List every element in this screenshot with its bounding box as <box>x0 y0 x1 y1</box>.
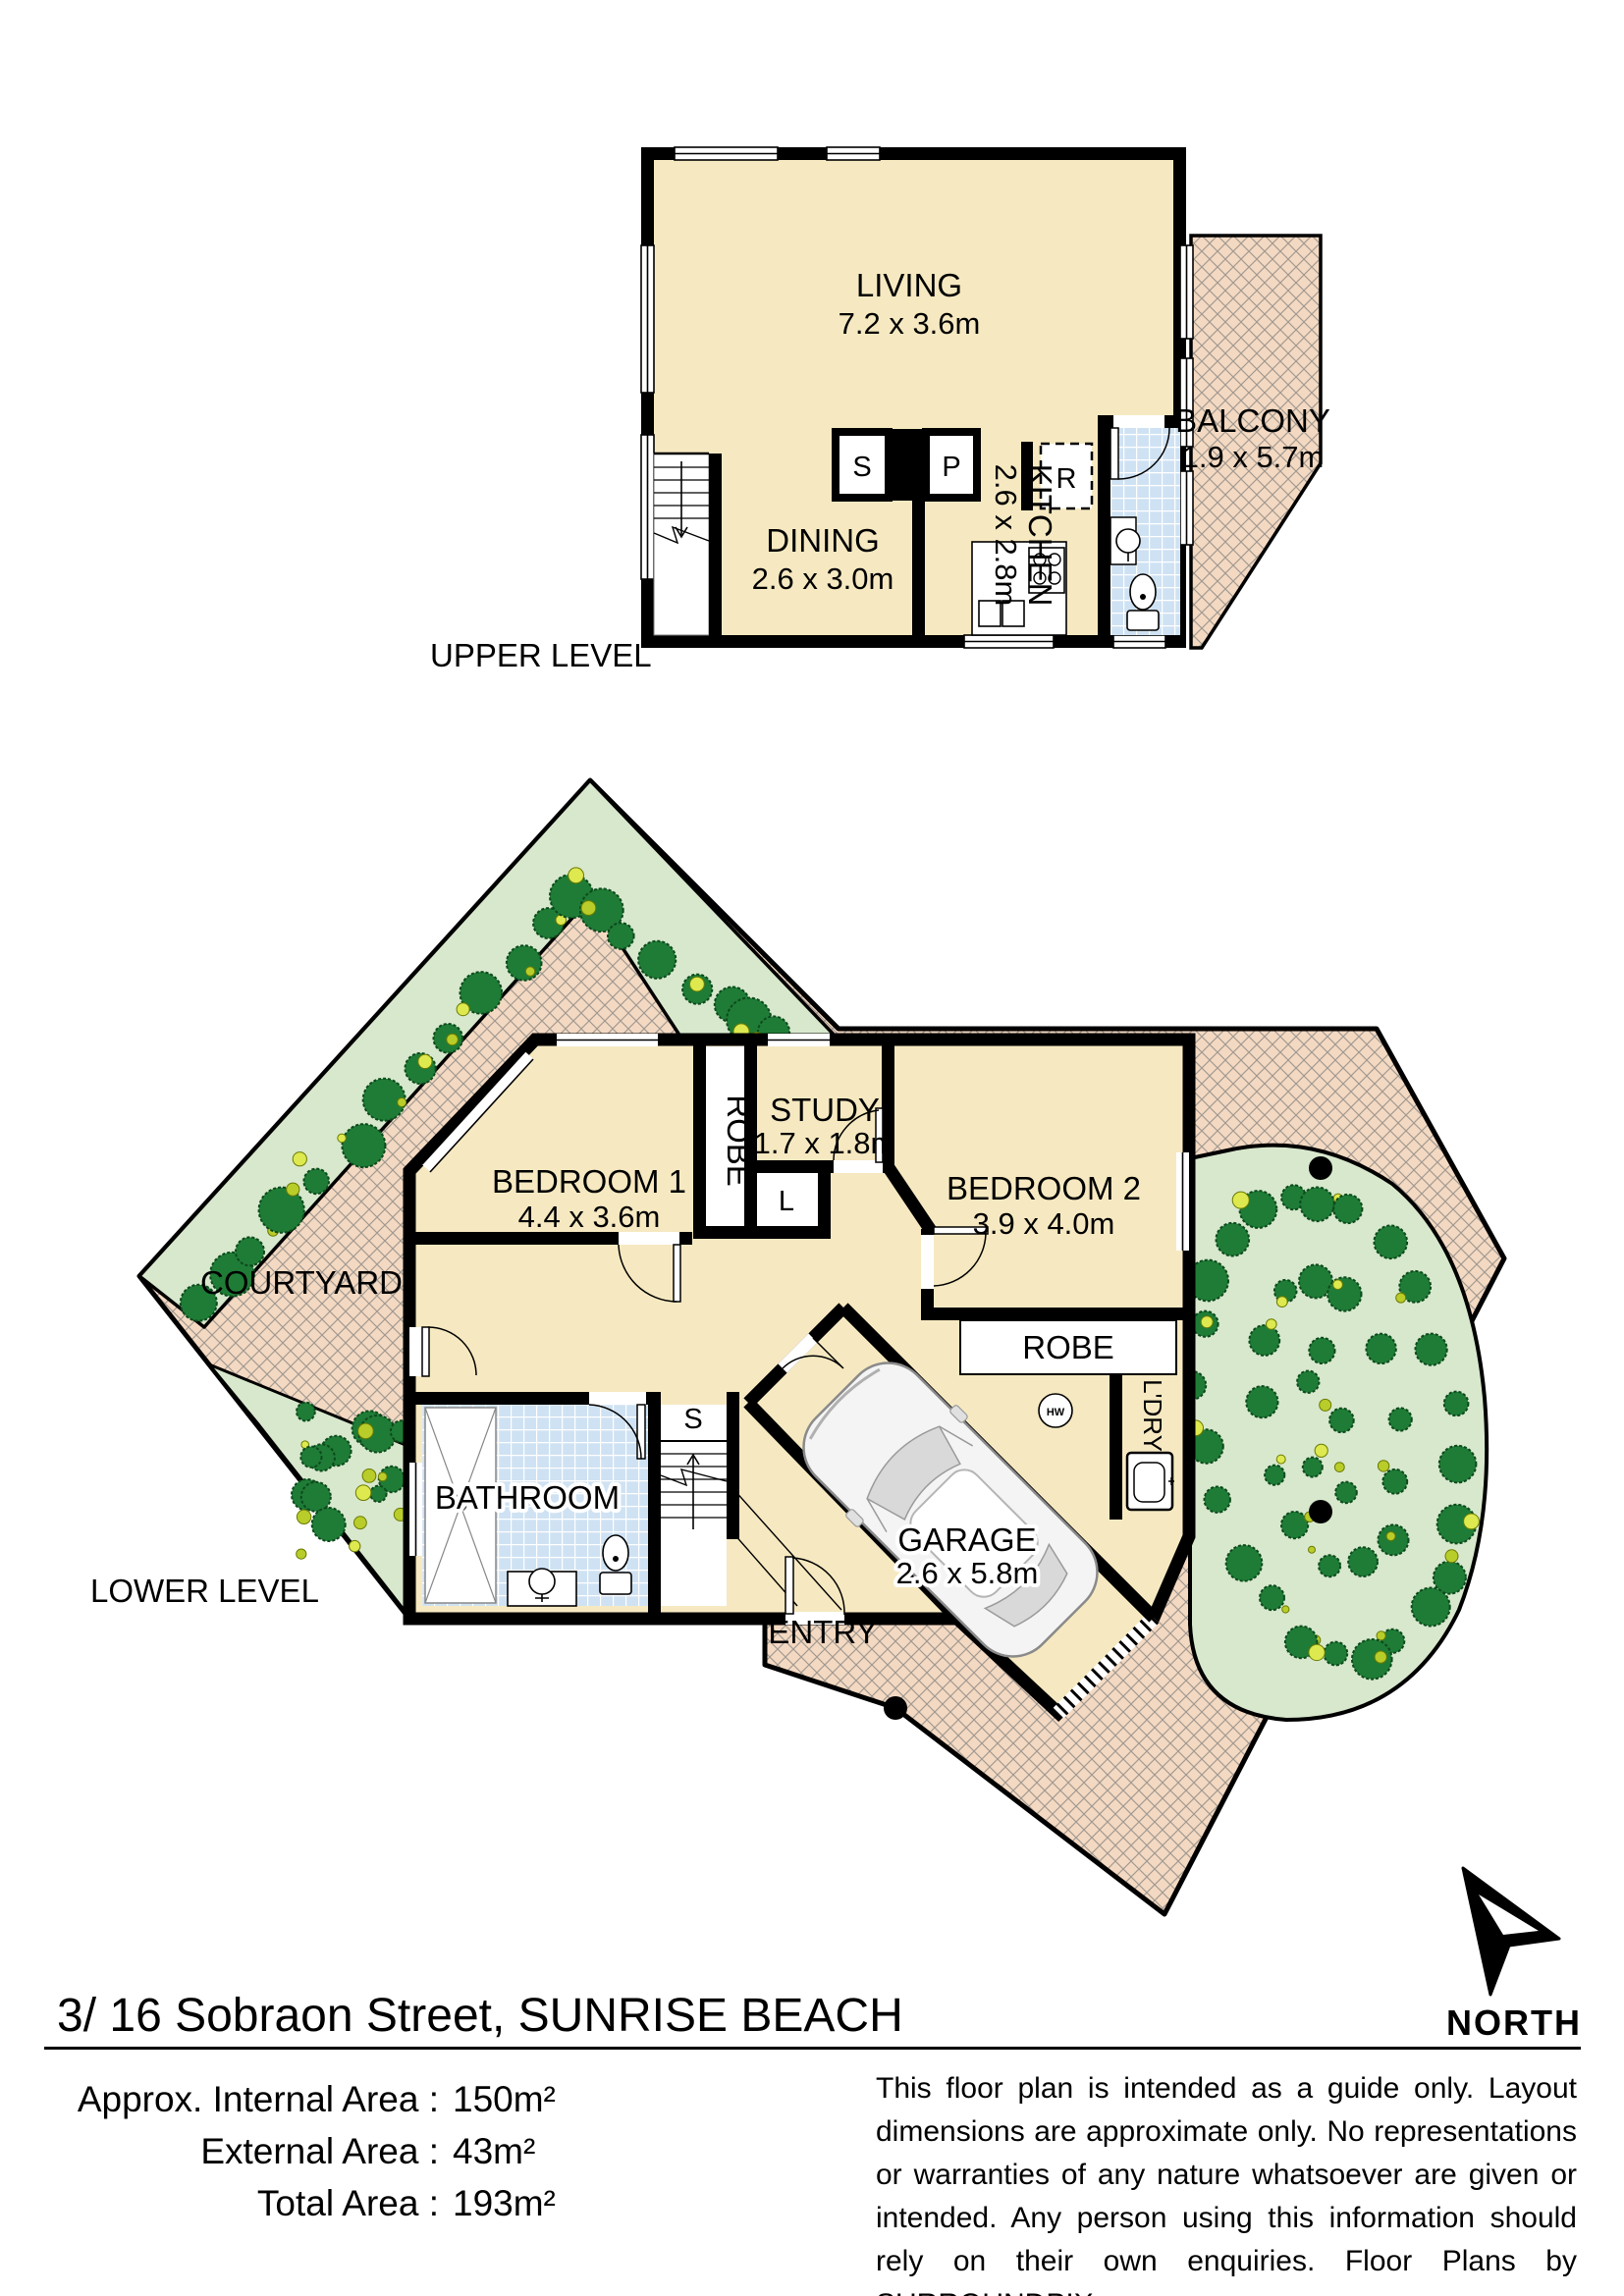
shrub-icon <box>1378 1461 1388 1471</box>
tree-icon <box>1205 1487 1230 1513</box>
area-row-external: External Area : 43m² <box>54 2125 556 2177</box>
shrub-icon <box>581 901 596 916</box>
tree-icon <box>1260 1585 1284 1610</box>
tree-icon <box>1299 1264 1332 1298</box>
north-label: NORTH <box>1435 2002 1593 2044</box>
area-value: 193m² <box>453 2177 556 2229</box>
linen-label: L <box>779 1186 794 1217</box>
store-label: S <box>852 452 871 483</box>
area-summary: Approx. Internal Area : 150m² External A… <box>54 2073 556 2229</box>
shrub-icon <box>378 1472 387 1481</box>
laundry-label: L'DRY <box>1138 1379 1167 1452</box>
tree-icon <box>638 941 676 979</box>
tree-icon <box>1329 1409 1354 1433</box>
shrub-icon <box>1282 1606 1289 1613</box>
tree-icon <box>300 1447 321 1468</box>
bedroom2-dims: 3.9 x 4.0m <box>973 1206 1115 1241</box>
shrub-icon <box>398 1098 406 1107</box>
tree-icon <box>342 1124 385 1167</box>
tree-icon <box>1281 1512 1308 1538</box>
tree-icon <box>1249 1325 1279 1356</box>
lower-level-plan: BEDROOM 1 4.4 x 3.6m ROBE STUDY 1.7 x 1.… <box>90 780 1504 1914</box>
courtyard-label: COURTYARD <box>200 1264 403 1301</box>
floor-plan-page: LIVING 7.2 x 3.6m DINING 2.6 x 3.0m KITC… <box>0 0 1624 2296</box>
shrub-icon <box>362 1469 376 1483</box>
upper-level-plan: LIVING 7.2 x 3.6m DINING 2.6 x 3.0m KITC… <box>430 147 1330 673</box>
tree-icon <box>303 1169 329 1195</box>
bedroom2-label: BEDROOM 2 <box>947 1170 1141 1206</box>
tree-icon <box>1333 1195 1362 1223</box>
dining-dims: 2.6 x 3.0m <box>752 561 894 596</box>
lower-level-label: LOWER LEVEL <box>90 1573 319 1609</box>
balcony-dims: 1.9 x 5.7m <box>1182 440 1325 474</box>
upper-stairs <box>654 454 722 642</box>
tree-icon <box>1217 1223 1250 1256</box>
toilet-icon <box>603 1535 628 1571</box>
floor-plan-canvas: LIVING 7.2 x 3.6m DINING 2.6 x 3.0m KITC… <box>0 0 1624 2296</box>
garage-dims: 2.6 x 5.8m <box>896 1556 1039 1590</box>
tree-icon <box>1444 1392 1469 1416</box>
balcony-label: BALCONY <box>1175 402 1330 439</box>
shrub-icon <box>1334 1463 1344 1472</box>
shrub-icon <box>1309 1546 1316 1553</box>
living-dims: 7.2 x 3.6m <box>839 306 981 341</box>
fridge-label: R <box>1056 463 1077 495</box>
bedroom1-label: BEDROOM 1 <box>492 1163 686 1200</box>
shrub-icon <box>1309 1644 1325 1660</box>
shrub-icon <box>568 868 584 883</box>
boundary-peg <box>1309 1156 1332 1180</box>
area-value: 150m² <box>453 2073 556 2125</box>
shrub-icon <box>1276 1455 1285 1464</box>
dining-label: DINING <box>766 522 880 559</box>
shrub-icon <box>457 1003 469 1016</box>
tree-icon <box>1348 1547 1378 1576</box>
pantry-label: P <box>942 452 960 483</box>
area-row-total: Total Area : 193m² <box>54 2177 556 2229</box>
shrub-icon <box>1320 1399 1331 1411</box>
tree-icon <box>1434 1562 1466 1594</box>
shrub-icon <box>358 1423 374 1439</box>
tree-icon <box>1300 1188 1334 1222</box>
shrub-icon <box>1232 1192 1249 1208</box>
basin-icon <box>1116 529 1140 553</box>
area-row-internal: Approx. Internal Area : 150m² <box>54 2073 556 2125</box>
north-arrow-icon <box>1463 1868 1559 1995</box>
property-address: 3/ 16 Sobraon Street, SUNRISE BEACH <box>57 1989 903 2043</box>
area-label: External Area : <box>54 2125 439 2177</box>
door-leaf <box>1110 428 1118 479</box>
shrub-icon <box>293 1152 306 1166</box>
tree-icon <box>1309 1338 1334 1363</box>
shrub-icon <box>525 967 534 976</box>
shrub-icon <box>1464 1514 1480 1529</box>
shrub-icon <box>1396 1293 1406 1303</box>
tree-icon <box>1246 1386 1277 1417</box>
shrub-icon <box>1315 1444 1327 1457</box>
basin-icon <box>529 1569 555 1594</box>
shrub-icon <box>447 1034 459 1045</box>
shrub-icon <box>297 1549 306 1559</box>
shrub-icon <box>354 1517 367 1529</box>
area-value: 43m² <box>453 2125 535 2177</box>
hot-water-label: HW <box>1047 1407 1065 1418</box>
tree-icon <box>297 1403 315 1421</box>
shrub-icon <box>350 1540 360 1551</box>
tree-icon <box>1226 1545 1263 1581</box>
tree-icon <box>608 923 634 949</box>
tree-icon <box>1327 1277 1361 1310</box>
tree-icon <box>1375 1226 1408 1259</box>
shrub-icon <box>418 1054 432 1068</box>
entry-label: ENTRY <box>768 1614 877 1650</box>
garage-label: GARAGE <box>897 1522 1036 1558</box>
kitchen-label: KITCHEN <box>1022 464 1058 607</box>
upper-level-label: UPPER LEVEL <box>430 637 652 673</box>
tree-icon <box>1412 1588 1450 1627</box>
shrub-icon <box>690 977 705 991</box>
tree-icon <box>1303 1458 1323 1477</box>
disclaimer-text: This floor plan is intended as a guide o… <box>876 2067 1577 2296</box>
shrub-icon <box>1377 1631 1385 1640</box>
kitchen-dims: 2.6 x 2.8m <box>989 464 1023 607</box>
tree-icon <box>1265 1466 1284 1485</box>
bedroom1-dims: 4.4 x 3.6m <box>518 1200 661 1234</box>
bathroom-label: BATHROOM <box>435 1479 620 1516</box>
shrub-icon <box>1375 1651 1386 1663</box>
tree-icon <box>1416 1334 1447 1365</box>
area-label: Approx. Internal Area : <box>54 2073 439 2125</box>
tree-icon <box>1319 1555 1340 1576</box>
robe2-label: ROBE <box>1022 1329 1114 1365</box>
boundary-peg <box>1309 1500 1332 1523</box>
upper-bathroom <box>1098 415 1180 648</box>
tree-icon <box>1335 1482 1357 1504</box>
tree-icon <box>1389 1408 1412 1430</box>
study-label: STUDY <box>770 1092 880 1128</box>
tree-icon <box>507 945 542 981</box>
divider-line <box>44 2047 1581 2050</box>
shrub-icon <box>355 1485 371 1501</box>
robe1-label: ROBE <box>721 1095 757 1187</box>
shrub-icon <box>1386 1532 1395 1541</box>
living-label: LIVING <box>856 267 962 303</box>
tree-icon <box>1382 1469 1407 1494</box>
tree-icon <box>370 1486 386 1502</box>
shrub-icon <box>297 1510 310 1523</box>
tree-icon <box>312 1508 346 1541</box>
shrub-icon <box>1445 1550 1458 1563</box>
tree-icon <box>1366 1334 1395 1363</box>
toilet-icon <box>1130 574 1156 610</box>
shrub-icon <box>1276 1297 1287 1308</box>
shrub-icon <box>1201 1316 1213 1328</box>
tree-icon <box>1324 1642 1347 1666</box>
shrub-icon <box>338 1134 347 1143</box>
area-label: Total Area : <box>54 2177 439 2229</box>
tree-icon <box>1297 1371 1319 1393</box>
tree-icon <box>1439 1446 1477 1483</box>
boundary-peg <box>884 1696 907 1720</box>
shrub-icon <box>1267 1319 1277 1330</box>
study-dims: 1.7 x 1.8m <box>754 1126 896 1160</box>
stairs-label: S <box>683 1404 702 1435</box>
shrub-icon <box>287 1183 299 1196</box>
tree-icon <box>236 1237 264 1265</box>
shrub-icon <box>1333 1280 1343 1290</box>
